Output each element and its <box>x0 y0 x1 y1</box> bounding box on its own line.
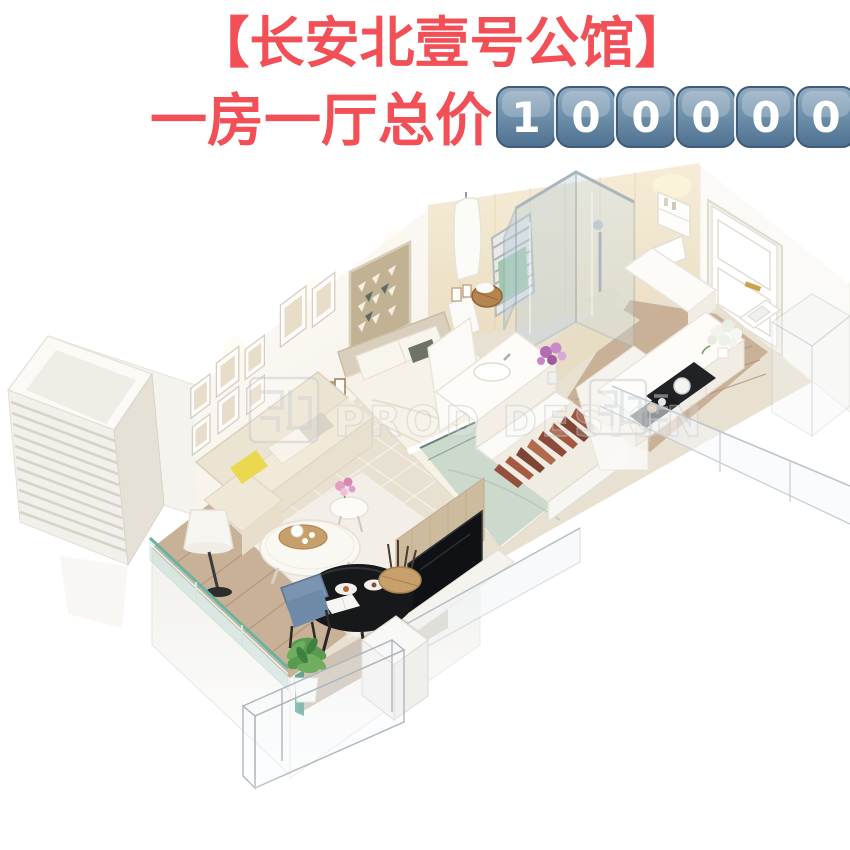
watermark-text: PROD DESIGN <box>334 397 705 446</box>
seal-stamp-icon <box>250 378 318 442</box>
price-keycap: 0 <box>554 84 618 150</box>
keycap-digit: 0 <box>571 93 600 142</box>
price-keycap: 0 <box>674 84 738 150</box>
headline-line2: 一房一厅总价 <box>150 88 492 154</box>
price-keycap: 1 <box>494 84 558 150</box>
headline-line1: 【长安北壹号公馆】 <box>194 11 689 75</box>
keycap-digit: 0 <box>631 93 660 142</box>
keycap-digit: 0 <box>751 93 780 142</box>
price-keycaps: 1 0 0 0 0 0 <box>494 84 850 150</box>
price-keycap: 0 <box>614 84 678 150</box>
floorplan-render: PROD DESIGN 【长安北壹号公馆】 一房一厅总价 1 0 <box>0 0 850 850</box>
price-keycap: 0 <box>794 84 850 150</box>
seal-stamp-icon <box>590 380 646 434</box>
keycap-digit: 0 <box>811 93 840 142</box>
hanging-robe <box>454 192 481 280</box>
bottom-fade <box>0 770 850 850</box>
sink-bowl <box>474 363 510 381</box>
teapot <box>291 525 303 537</box>
price-keycap: 0 <box>734 84 798 150</box>
keycap-digit: 1 <box>511 93 540 142</box>
real-estate-ad-image: PROD DESIGN 【长安北壹号公馆】 一房一厅总价 1 0 <box>0 0 850 850</box>
ghost-box-right <box>772 294 850 436</box>
pot <box>674 378 690 394</box>
keycap-digit: 0 <box>691 93 720 142</box>
